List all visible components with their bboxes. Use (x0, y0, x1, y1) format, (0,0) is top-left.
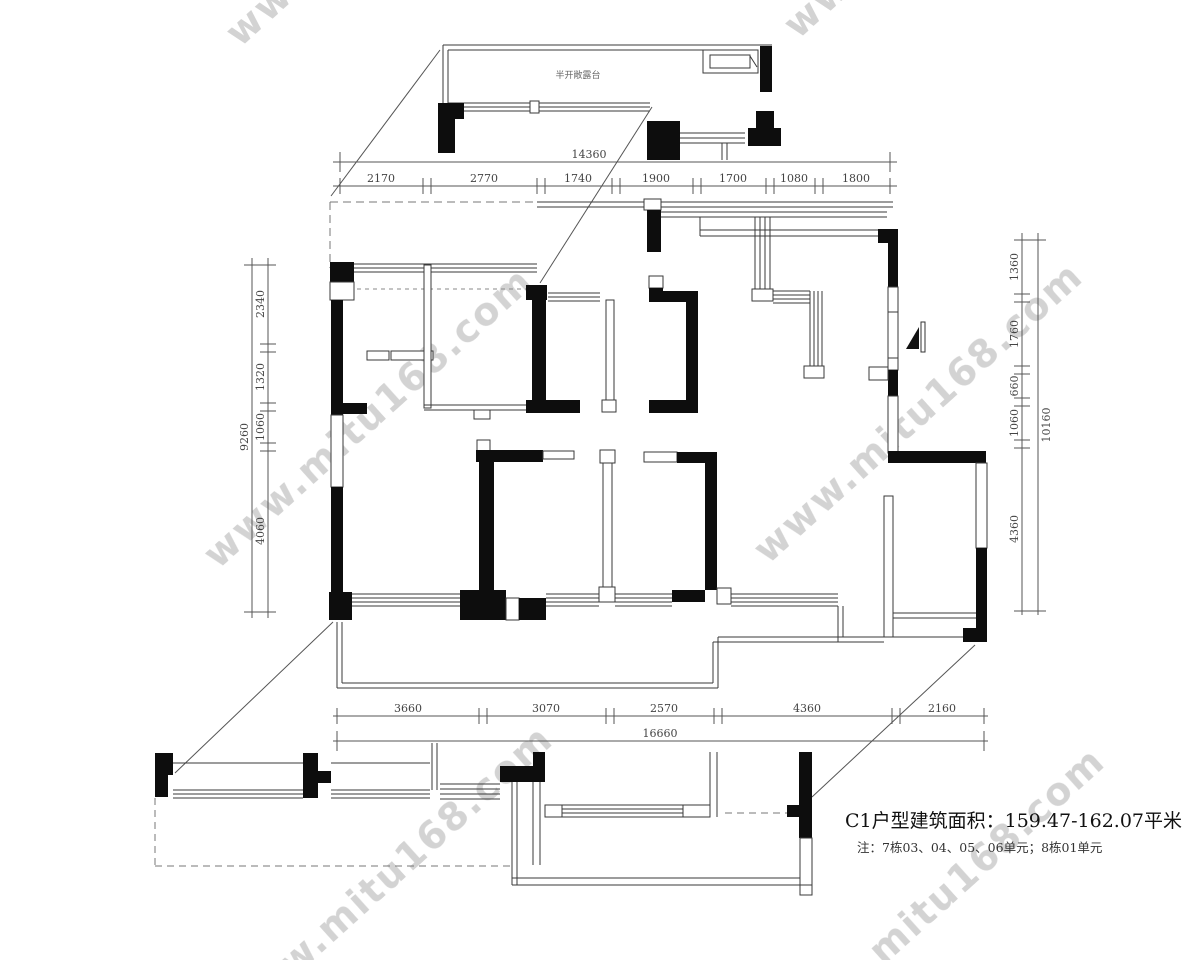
leader-line-entry (540, 107, 652, 283)
svg-text:1700: 1700 (719, 172, 747, 185)
svg-text:2170: 2170 (367, 172, 395, 185)
top-dimension-line: 14360 2170 2770 1740 1900 1700 1080 1800 (333, 148, 897, 194)
svg-text:4360: 4360 (1008, 515, 1021, 543)
terrace-label: 半开敞露台 (555, 69, 600, 81)
leader-line-bottom-right (812, 645, 975, 797)
note-text: 注：7栋03、04、05、06单元；8栋01单元 (857, 840, 1102, 855)
svg-text:4060: 4060 (254, 517, 267, 545)
svg-text:1060: 1060 (1008, 409, 1021, 437)
svg-text:1900: 1900 (642, 172, 670, 185)
svg-text:2340: 2340 (254, 290, 267, 318)
svg-text:3070: 3070 (532, 702, 560, 715)
floor-plan-page: www.mitu168.com www.mitu168.com www.mitu… (0, 0, 1200, 960)
svg-text:2770: 2770 (470, 172, 498, 185)
svg-text:www.mitu168.com: www.mitu168.com (775, 0, 1122, 47)
svg-text:1320: 1320 (254, 363, 267, 391)
svg-text:2570: 2570 (650, 702, 678, 715)
svg-text:1060: 1060 (254, 413, 267, 441)
dim-top-total: 14360 (572, 148, 607, 161)
svg-text:2160: 2160 (928, 702, 956, 715)
svg-text:1360: 1360 (1008, 253, 1021, 281)
svg-text:1740: 1740 (564, 172, 592, 185)
svg-text:www.mitu168.com: www.mitu168.com (215, 716, 562, 960)
svg-text:www.mitu168.com: www.mitu168.com (217, 0, 564, 55)
svg-text:1080: 1080 (780, 172, 808, 185)
floor-plan-svg: www.mitu168.com www.mitu168.com www.mitu… (0, 0, 1200, 960)
svg-text:1760: 1760 (1008, 320, 1021, 348)
area-title: C1户型建筑面积：159.47-162.07平米 (845, 810, 1182, 832)
bottom-center-section (500, 752, 812, 895)
svg-text:3660: 3660 (394, 702, 422, 715)
bottom-dimension-line: 3660 3070 2570 4360 2160 16660 (333, 702, 988, 751)
svg-text:4360: 4360 (793, 702, 821, 715)
svg-text:1800: 1800 (842, 172, 870, 185)
main-floor-plan (329, 199, 987, 688)
leader-line-bottom-left (175, 622, 333, 773)
top-roof-section (438, 45, 781, 160)
left-dimension-line: 2340 1320 1060 4060 9260 (238, 258, 276, 618)
dim-right-total: 10160 (1040, 408, 1053, 443)
north-arrow-icon (906, 322, 925, 352)
dim-left-total: 9260 (238, 423, 251, 451)
dim-bottom-total: 16660 (643, 727, 678, 740)
svg-text:660: 660 (1008, 376, 1021, 397)
